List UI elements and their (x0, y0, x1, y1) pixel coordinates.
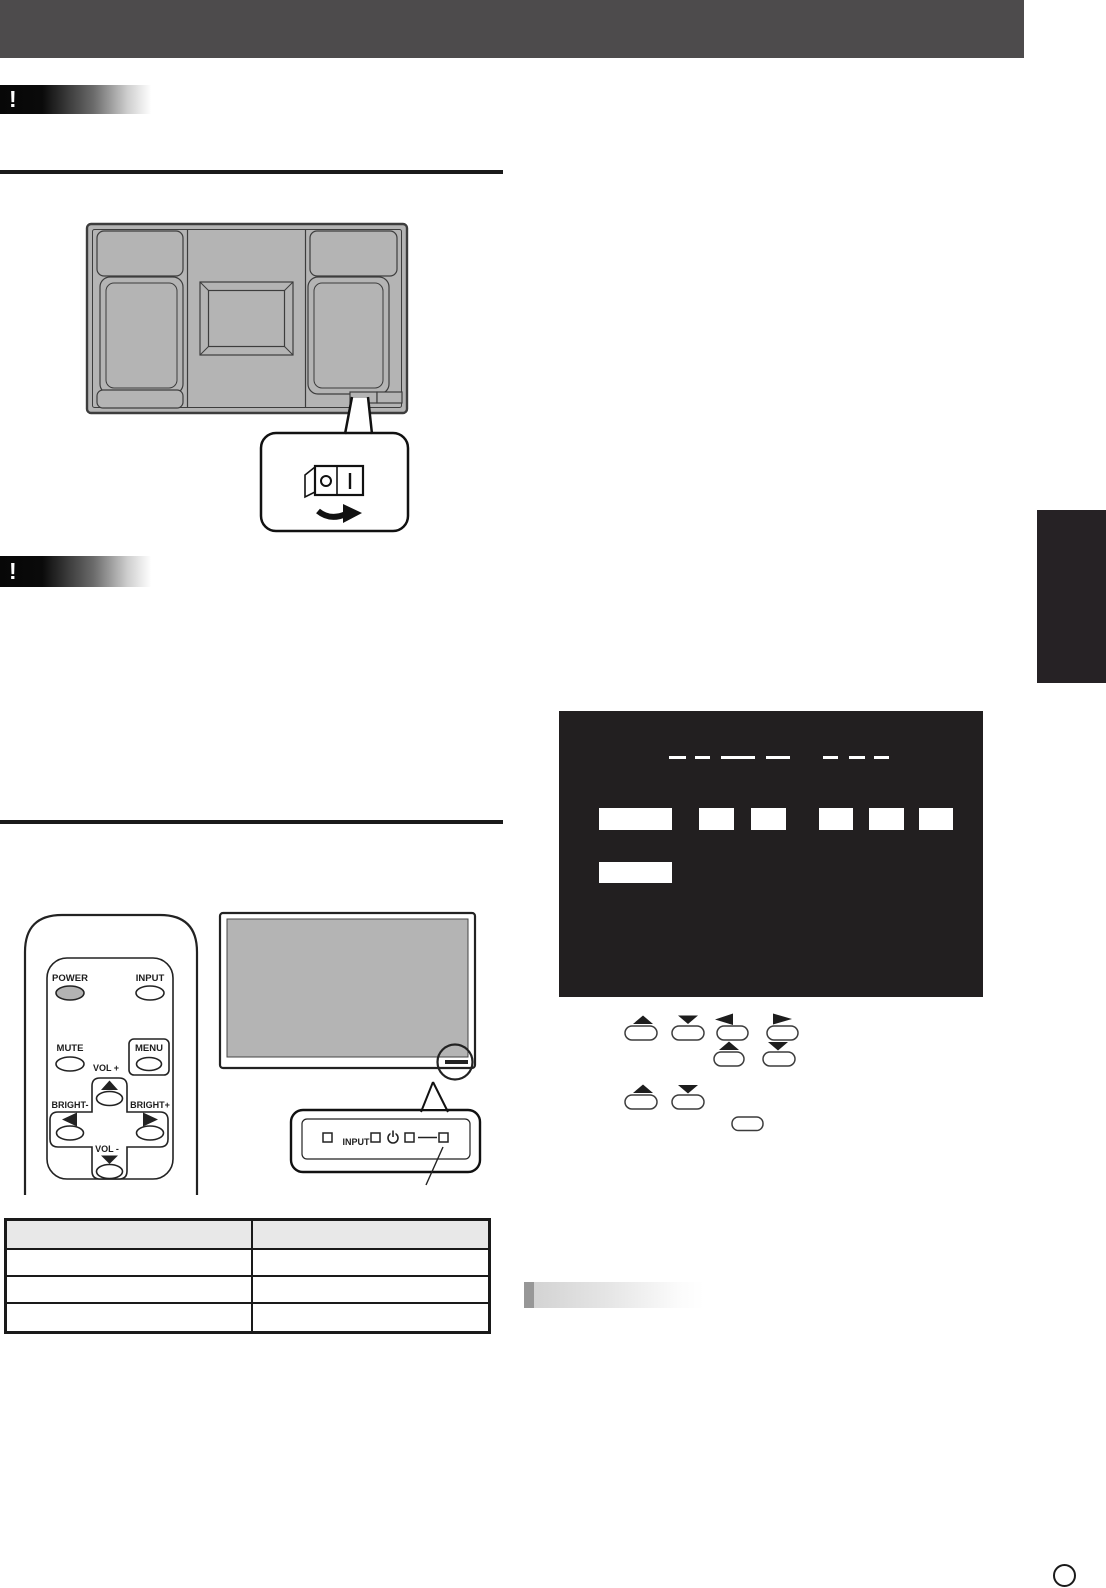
osd-dash (823, 756, 838, 759)
indicator-led-square (371, 1133, 380, 1142)
table-header-row (7, 1221, 488, 1250)
table-row (7, 1304, 488, 1331)
monitor-rear-diagram (75, 215, 415, 535)
exclamation-icon: ! (9, 86, 17, 112)
page-number-circle (1053, 1564, 1076, 1587)
remote-vol-minus-label: VOL - (95, 1144, 119, 1154)
remote-input-label: INPUT (136, 973, 165, 984)
button-icon (672, 1095, 704, 1109)
chapter-header-bar (0, 0, 1024, 58)
osd-dash (874, 756, 889, 759)
remote-power-label: POWER (52, 973, 88, 984)
osd-menu-block (599, 862, 672, 883)
remote-mute-button (56, 1057, 84, 1071)
caution-badge: ! (0, 85, 156, 114)
up-arrow-icon (633, 1016, 653, 1025)
osd-dash (721, 756, 755, 759)
monitor-screen (227, 919, 468, 1057)
rear-top-right-box (310, 231, 397, 276)
remote-up-button (97, 1092, 123, 1106)
rear-bottom-left-box (97, 390, 183, 408)
osd-menu-screen (559, 711, 983, 997)
osd-dash (695, 756, 710, 759)
exclamation-icon: ! (9, 558, 17, 584)
osd-menu-block (699, 808, 734, 830)
up-arrow-icon (633, 1085, 653, 1094)
down-arrow-icon (768, 1042, 788, 1051)
table-column-divider (251, 1221, 253, 1331)
osd-menu-block (751, 808, 786, 830)
section-rule (0, 820, 503, 824)
tips-bar (524, 1282, 704, 1308)
remote-bright-minus-label: BRIGHT- (52, 1100, 89, 1110)
button-icon (717, 1026, 748, 1040)
osd-dash (766, 756, 790, 759)
rear-top-left-box (97, 231, 183, 276)
rocker-switch-icon (305, 466, 363, 497)
remote-bright-plus-label: BRIGHT+ (130, 1100, 170, 1110)
osd-menu-block (819, 808, 853, 830)
remote-control-diagram: POWER INPUT MUTE MENU VOL + BRIGHT- BRIG… (10, 900, 200, 1195)
remote-down-button (97, 1165, 123, 1179)
button-icon (714, 1052, 744, 1066)
down-arrow-icon (678, 1016, 698, 1025)
button-icon (672, 1026, 704, 1040)
indicator-strip (445, 1060, 468, 1064)
remote-menu-button (137, 1058, 162, 1071)
right-arrow-icon (773, 1014, 792, 1025)
caution-badge: ! (0, 556, 156, 587)
button-icon (767, 1026, 798, 1040)
remote-left-button (57, 1126, 84, 1140)
monitor-front-diagram: INPUT (215, 905, 490, 1200)
up-arrow-icon (719, 1042, 739, 1051)
rear-left-speaker (100, 277, 183, 394)
indicator-table (4, 1218, 491, 1334)
osd-menu-block (919, 808, 953, 830)
osd-dash (849, 756, 865, 759)
remote-input-button (136, 986, 164, 1000)
chapter-side-tab (1037, 510, 1106, 683)
tips-bar-lead-block (524, 1282, 534, 1308)
left-arrow-icon (715, 1014, 733, 1026)
indicator-led-square (323, 1133, 332, 1142)
osd-dash (669, 756, 686, 759)
remote-right-button (137, 1126, 164, 1140)
rear-right-speaker (308, 277, 389, 394)
table-row (7, 1250, 488, 1277)
osd-menu-block (599, 808, 672, 830)
tips-bar-gradient (534, 1282, 704, 1308)
manual-page: ! (0, 0, 1106, 1588)
power-led-square (439, 1133, 448, 1142)
table-row (7, 1277, 488, 1304)
button-icon (732, 1117, 763, 1131)
osd-instruction-buttons (615, 1008, 810, 1135)
indicator-input-label: INPUT (343, 1137, 371, 1147)
remote-menu-label: MENU (135, 1043, 163, 1054)
button-icon (625, 1026, 657, 1040)
indicator-led-square (405, 1133, 414, 1142)
button-icon (763, 1052, 795, 1066)
remote-mute-label: MUTE (57, 1043, 84, 1054)
remote-vol-plus-label: VOL + (93, 1063, 119, 1073)
button-icon (625, 1095, 657, 1109)
remote-power-button (56, 986, 84, 1000)
down-arrow-icon (678, 1085, 698, 1094)
section-rule (0, 170, 503, 174)
osd-menu-block (869, 808, 904, 830)
